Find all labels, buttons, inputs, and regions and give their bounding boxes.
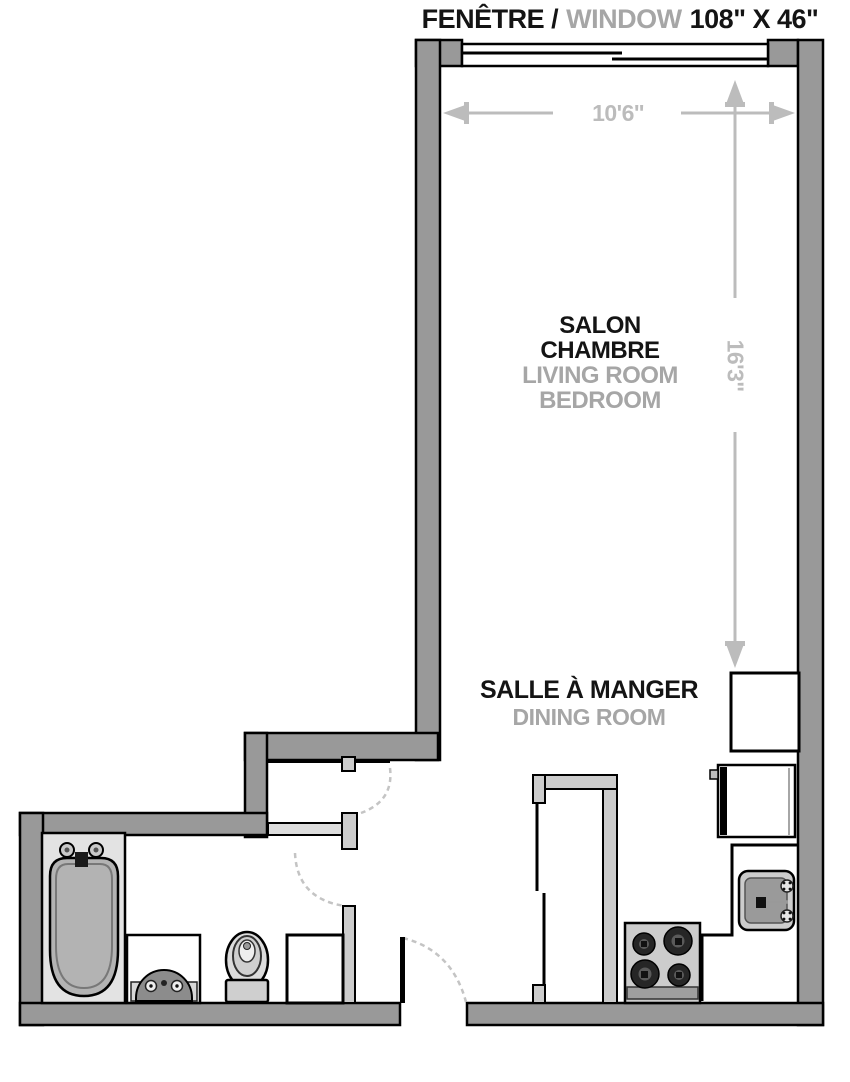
floor-plan: FENÊTRE /WINDOW108" X 46" SALON CHAMBRE … xyxy=(0,0,850,1082)
stove xyxy=(625,923,700,1003)
dining-closet xyxy=(731,673,799,751)
refrigerator xyxy=(710,765,795,837)
living-room-label: SALON CHAMBRE LIVING ROOM BEDROOM xyxy=(470,313,730,413)
dimension-height-label: 16'3'' xyxy=(722,306,749,426)
room-label-en: BEDROOM xyxy=(470,388,730,413)
entry-closet xyxy=(287,935,343,1003)
entry-door-swing xyxy=(403,938,466,1002)
window-title: FENÊTRE /WINDOW108" X 46" xyxy=(390,4,850,35)
hall-door-swing xyxy=(361,768,390,813)
window xyxy=(462,44,768,66)
sink-faucet-icon xyxy=(756,897,766,908)
kitchen-sink xyxy=(739,871,794,930)
room-label-fr: SALON xyxy=(470,313,730,338)
window-title-french: FENÊTRE / xyxy=(422,4,559,35)
room-label-en: LIVING ROOM xyxy=(470,363,730,388)
room-label-fr: SALLE À MANGER xyxy=(450,677,728,704)
toilet xyxy=(226,932,268,1002)
room-label-en: DINING ROOM xyxy=(450,704,728,731)
tub-spout-icon xyxy=(75,852,88,867)
floor-plan-canvas xyxy=(0,0,850,1082)
room-label-fr: CHAMBRE xyxy=(470,338,730,363)
dimension-width-label: 10'6'' xyxy=(556,100,680,127)
exterior-walls xyxy=(20,40,823,1025)
fridge-handle-icon xyxy=(710,770,718,779)
window-title-english: WINDOW xyxy=(566,4,681,35)
hall-partitions xyxy=(267,757,390,1003)
closet-partition xyxy=(533,775,617,1003)
window-title-size: 108" X 46" xyxy=(690,4,819,35)
bathroom-vanity-sink xyxy=(127,935,200,1003)
bathroom-door-swing xyxy=(295,853,345,906)
dining-room-label: SALLE À MANGER DINING ROOM xyxy=(450,677,728,731)
entry-door-leaf xyxy=(400,937,405,1003)
bathtub xyxy=(42,833,125,1003)
